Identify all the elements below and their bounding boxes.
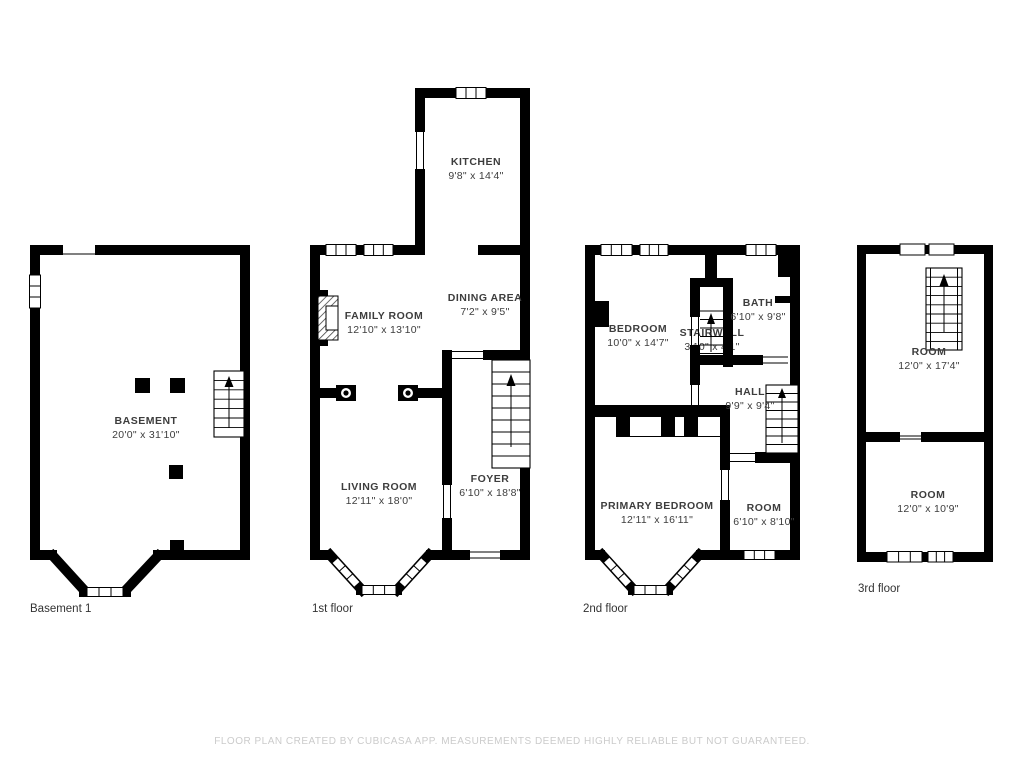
room-label-dining-area: DINING AREA [448, 292, 523, 304]
disclaimer-text: FLOOR PLAN CREATED BY CUBICASA APP. MEAS… [214, 736, 809, 747]
room-dims-living-room: 12'11" x 18'0" [346, 495, 413, 507]
floorplan-page: BASEMENT 20'0" x 31'10" Basement 1 [0, 0, 1024, 768]
floor-label-third: 3rd floor [858, 583, 900, 595]
floor-label-basement: Basement 1 [30, 603, 91, 615]
room-label-stairwell: STAIRWELL [680, 327, 745, 339]
room-label-room-3rd-top: ROOM [912, 346, 947, 358]
room-label-primary-bedroom: PRIMARY BEDROOM [600, 500, 713, 512]
third-floor-stairs [926, 268, 962, 350]
floorplan-canvas: BASEMENT 20'0" x 31'10" Basement 1 [0, 0, 1024, 768]
second-floor-plan: STAIRWELL 3'10" x 4'1" [583, 245, 800, 616]
room-label-bath: BATH [743, 297, 773, 309]
room-dims-room-3rd-top: 12'0" x 17'4" [898, 360, 960, 372]
hall-stairs [766, 385, 798, 453]
room-label-kitchen: KITCHEN [451, 156, 501, 168]
room-dims-room-2nd: 6'10" x 8'10" [733, 516, 795, 528]
room-label-family-room: FAMILY ROOM [345, 310, 423, 322]
room-label-bedroom: BEDROOM [609, 323, 667, 335]
foyer-stairs [492, 360, 530, 468]
room-dims-dining-area: 7'2" x 9'5" [460, 306, 509, 318]
room-dims-primary-bedroom: 12'11" x 16'11" [621, 514, 693, 526]
floor-label-second: 2nd floor [583, 603, 628, 615]
room-dims-basement: 20'0" x 31'10" [112, 429, 180, 441]
column-post [336, 385, 356, 401]
room-dims-bedroom: 10'0" x 14'7" [607, 337, 669, 349]
room-dims-room-3rd-bottom: 12'0" x 10'9" [897, 503, 959, 515]
room-label-hall: HALL [735, 386, 765, 398]
room-label-basement: BASEMENT [115, 415, 178, 427]
column-post [398, 385, 418, 401]
room-label-room-2nd: ROOM [747, 502, 782, 514]
room-dims-kitchen: 9'8" x 14'4" [448, 170, 503, 182]
first-floor-plan: KITCHEN 9'8" x 14'4" DINING AREA 7'2" x … [310, 88, 530, 616]
room-label-room-3rd-bottom: ROOM [911, 489, 946, 501]
room-dims-foyer: 6'10" x 18'8" [459, 487, 521, 499]
floor-label-first: 1st floor [312, 603, 353, 615]
room-label-living-room: LIVING ROOM [341, 481, 417, 493]
room-label-foyer: FOYER [471, 473, 510, 485]
basement-plan: BASEMENT 20'0" x 31'10" Basement 1 [30, 245, 251, 615]
basement-stairs [214, 371, 244, 437]
room-dims-family-room: 12'10" x 13'10" [347, 324, 421, 336]
room-dims-hall: 9'9" x 9'4" [725, 400, 774, 412]
room-dims-bath: 6'10" x 9'8" [730, 311, 785, 323]
third-floor-plan: ROOM 12'0" x 17'4" ROOM 12'0" x 10'9" 3r… [857, 244, 993, 595]
